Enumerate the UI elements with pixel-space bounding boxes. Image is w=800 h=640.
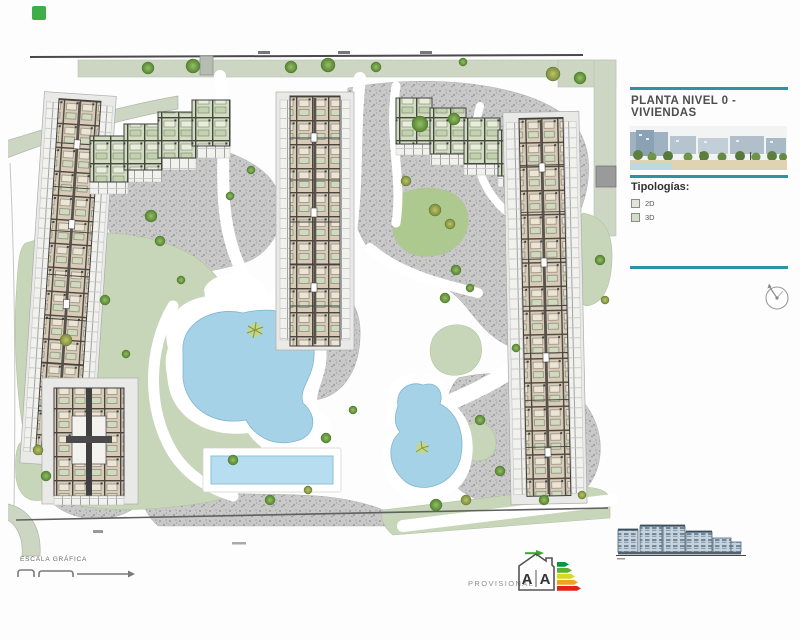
divider-bottom	[630, 266, 788, 269]
legend-label-3d: 3D	[645, 213, 655, 222]
green-corner-marker	[32, 6, 46, 20]
energy-certificate-icon: A A	[516, 549, 586, 595]
building-right-column	[503, 111, 587, 505]
divider-top	[630, 87, 788, 90]
legend-swatch-3d-icon	[631, 213, 640, 222]
graphic-scale-bar	[15, 566, 143, 582]
north-compass-icon	[762, 282, 792, 312]
plan-sheet: PLANTA NIVEL 0 - VIVIENDAS Tipologías: 2…	[0, 0, 800, 640]
legend-swatch-2d-icon	[631, 199, 640, 208]
energy-letter-right: A	[540, 571, 551, 588]
site-plan-canvas	[8, 48, 618, 558]
lap-pool	[203, 448, 341, 492]
legend-item-3d: 3D	[631, 212, 655, 223]
plan-title: PLANTA NIVEL 0 - VIVIENDAS	[631, 95, 791, 119]
building-center-column	[276, 92, 354, 350]
legend-heading: Tipologías:	[631, 181, 689, 193]
energy-letter-left: A	[522, 571, 533, 588]
legend-item-2d: 2D	[631, 198, 655, 209]
building-bottom-block	[42, 378, 138, 505]
scale-label: ESCALA GRÁFICA	[20, 556, 87, 563]
building-elevation-drawing	[616, 520, 748, 562]
project-rendering-thumbnail	[630, 126, 787, 170]
divider-middle	[630, 175, 788, 178]
legend-label-2d: 2D	[645, 199, 655, 208]
